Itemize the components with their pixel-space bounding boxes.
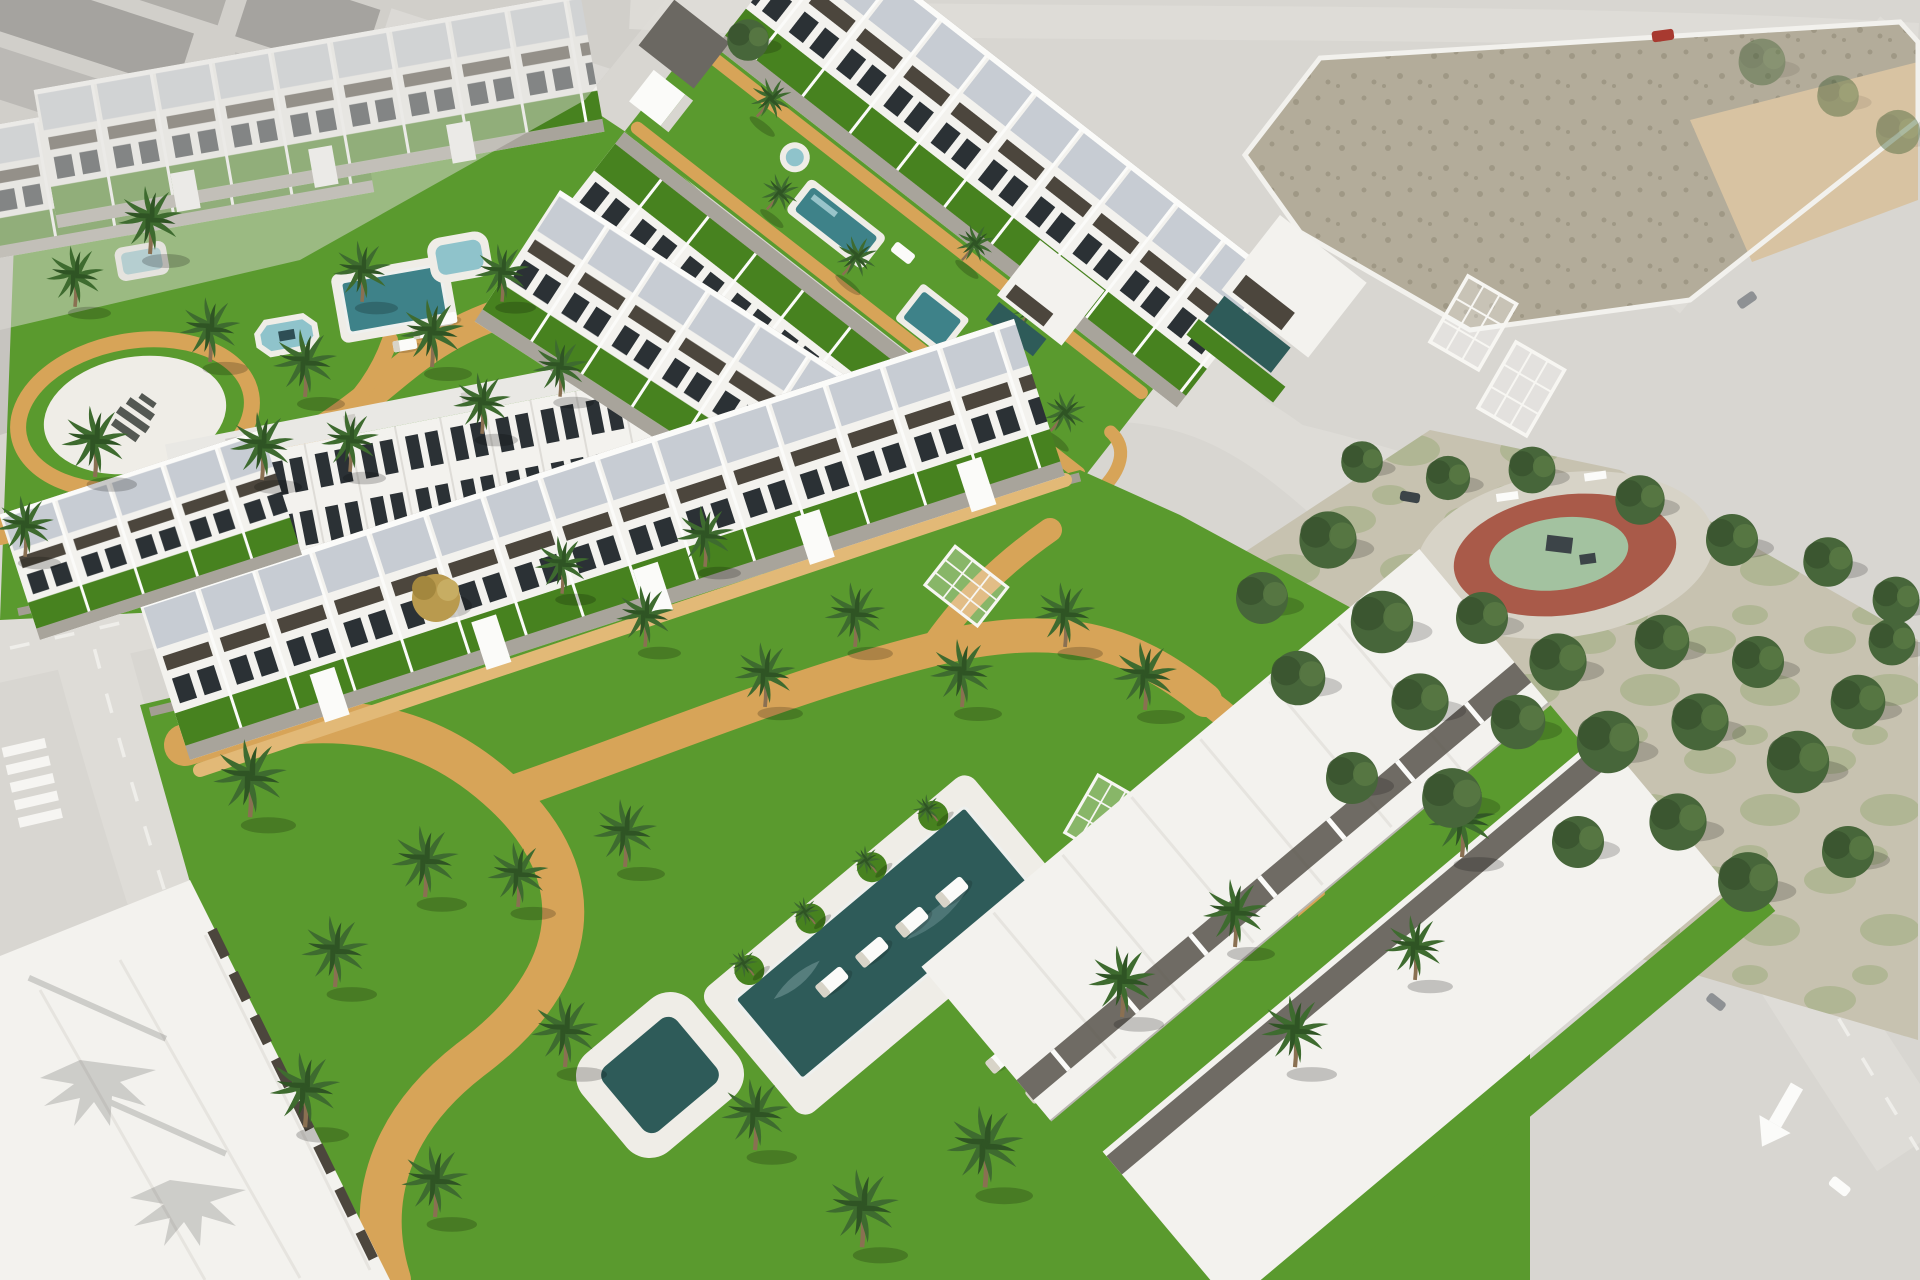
play-structure xyxy=(1545,535,1573,554)
screenshot-root xyxy=(0,0,1920,1280)
aerial-render xyxy=(0,0,1920,1280)
